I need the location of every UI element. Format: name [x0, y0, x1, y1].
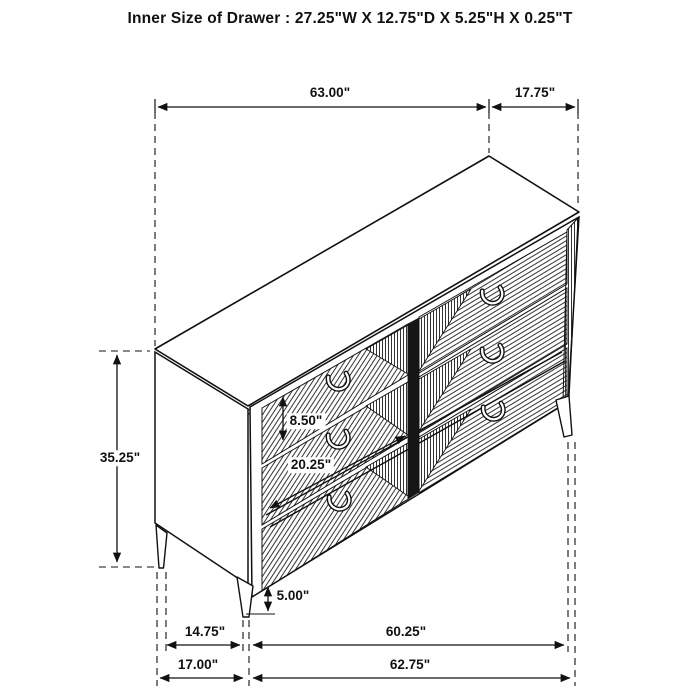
- dim-top-depth: 17.75": [512, 85, 558, 101]
- dim-leg-span-width: 60.25": [383, 624, 429, 640]
- dim-drawer-height: 8.50": [287, 413, 326, 429]
- drawer-divider: [408, 318, 419, 499]
- dim-overall-height: 35.25": [97, 450, 143, 466]
- dimension-diagram: Inner Size of Drawer : 27.25"W X 12.75"D…: [0, 0, 700, 700]
- dim-base-width: 62.75": [387, 657, 433, 673]
- dim-leg-span-depth: 14.75": [182, 624, 228, 640]
- dim-drawer-width: 20.25": [288, 457, 334, 473]
- extension-ticks: [155, 99, 578, 113]
- dim-base-depth: 17.00": [175, 657, 221, 673]
- dim-leg-height: 5.00": [274, 588, 313, 604]
- dim-top-width: 63.00": [307, 85, 353, 101]
- diagram-title: Inner Size of Drawer : 27.25"W X 12.75"D…: [0, 10, 700, 28]
- dresser: [155, 156, 579, 617]
- dresser-line-drawing: [0, 0, 700, 700]
